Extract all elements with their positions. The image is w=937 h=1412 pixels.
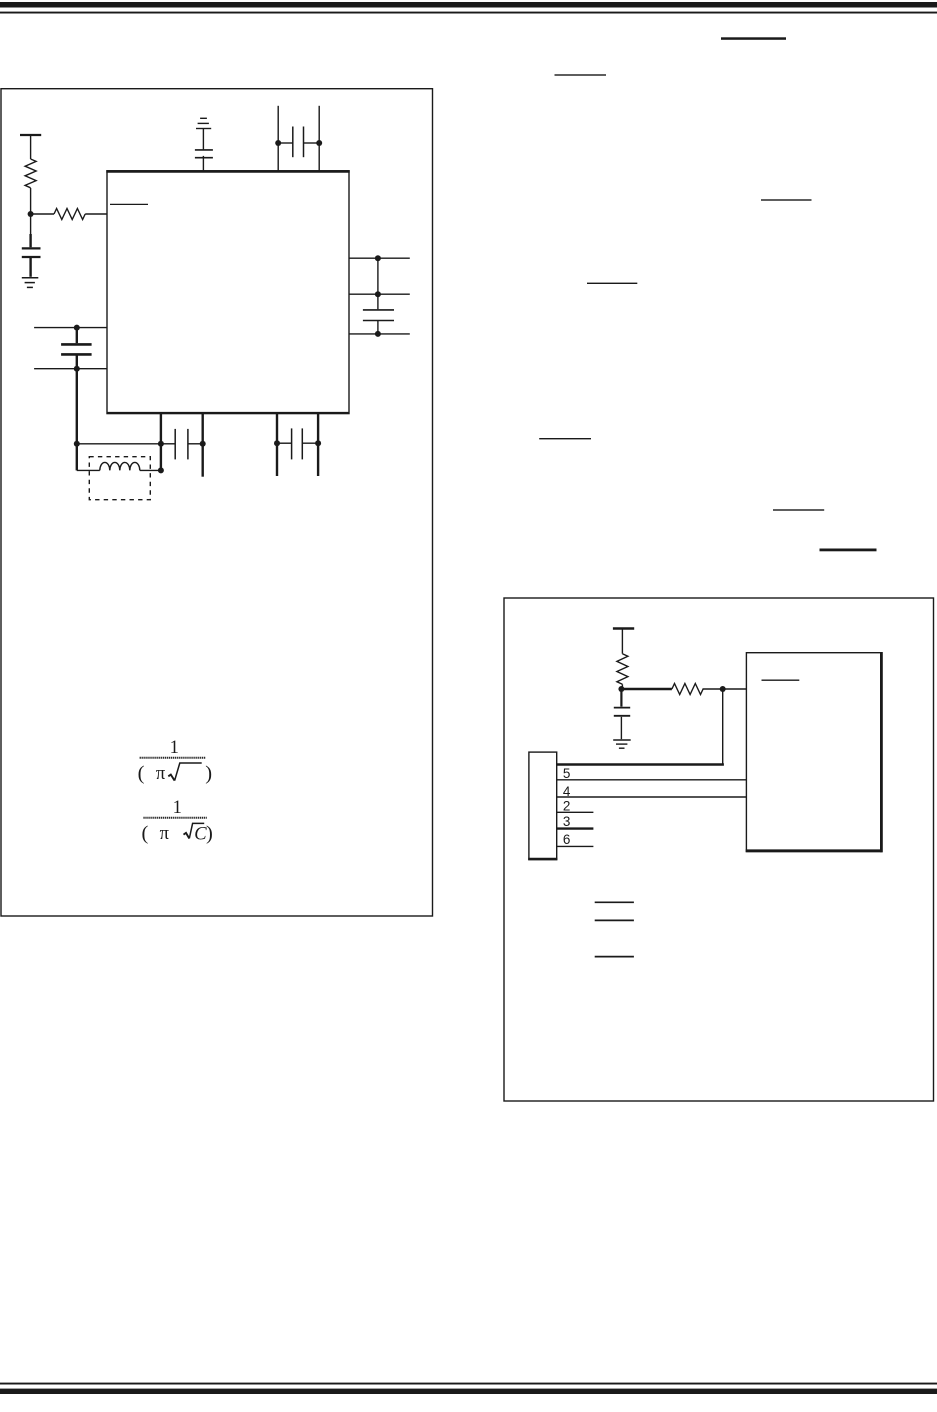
svg-text:π: π <box>160 824 170 844</box>
svg-text:5: 5 <box>563 766 571 781</box>
svg-text:3: 3 <box>563 814 571 829</box>
svg-text:1: 1 <box>170 738 179 758</box>
svg-text:): ) <box>205 763 212 785</box>
svg-text:6: 6 <box>563 832 571 847</box>
svg-text:π: π <box>156 764 166 784</box>
svg-text:(: ( <box>138 763 145 785</box>
svg-text:1: 1 <box>173 798 182 818</box>
svg-text:(: ( <box>142 823 149 845</box>
svg-text:): ) <box>206 823 213 845</box>
svg-text:2: 2 <box>563 798 571 813</box>
